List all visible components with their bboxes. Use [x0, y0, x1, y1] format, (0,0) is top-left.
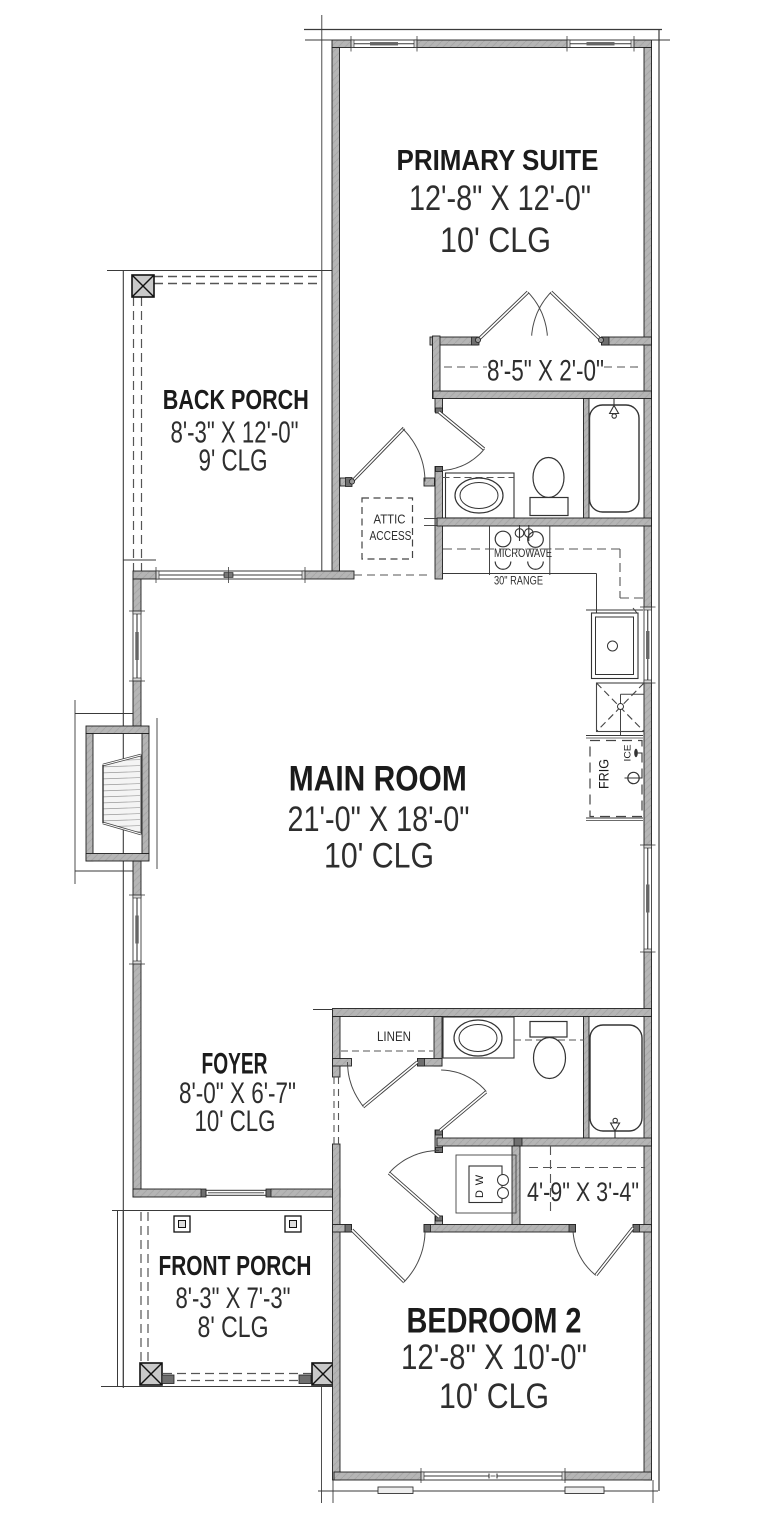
svg-text:PRIMARY SUITE: PRIMARY SUITE [397, 145, 599, 177]
svg-text:9' CLG: 9' CLG [199, 443, 268, 478]
svg-text:4'-9" X 3'-4": 4'-9" X 3'-4" [527, 1177, 639, 1207]
svg-text:30" RANGE: 30" RANGE [494, 576, 543, 588]
svg-text:ATTIC: ATTIC [374, 513, 406, 527]
svg-text:12'-8" X 10'-0": 12'-8" X 10'-0" [401, 1338, 587, 1377]
svg-text:FOYER: FOYER [202, 1048, 268, 1081]
svg-text:8' CLG: 8' CLG [198, 1311, 269, 1344]
svg-text:10' CLG: 10' CLG [440, 221, 551, 260]
svg-text:ICE: ICE [623, 745, 634, 762]
svg-text:10' CLG: 10' CLG [324, 837, 434, 876]
svg-text:ACCESS: ACCESS [370, 529, 412, 543]
svg-text:W: W [474, 1174, 486, 1185]
svg-text:FRIG: FRIG [597, 759, 612, 789]
svg-text:21'-0" X 18'-0": 21'-0" X 18'-0" [288, 800, 470, 839]
svg-text:BEDROOM 2: BEDROOM 2 [407, 1302, 582, 1341]
svg-text:FRONT PORCH: FRONT PORCH [159, 1250, 312, 1281]
svg-text:12'-8" X 12'-0": 12'-8" X 12'-0" [409, 179, 591, 218]
svg-text:10' CLG: 10' CLG [195, 1105, 276, 1138]
svg-text:BACK PORCH: BACK PORCH [163, 384, 309, 415]
svg-text:8'-5" X 2'-0": 8'-5" X 2'-0" [487, 355, 604, 388]
svg-text:LINEN: LINEN [377, 1029, 411, 1044]
svg-text:10' CLG: 10' CLG [439, 1377, 549, 1416]
svg-text:MAIN ROOM: MAIN ROOM [289, 760, 467, 799]
svg-text:MICROWAVE: MICROWAVE [494, 548, 552, 560]
svg-text:D: D [474, 1190, 486, 1198]
